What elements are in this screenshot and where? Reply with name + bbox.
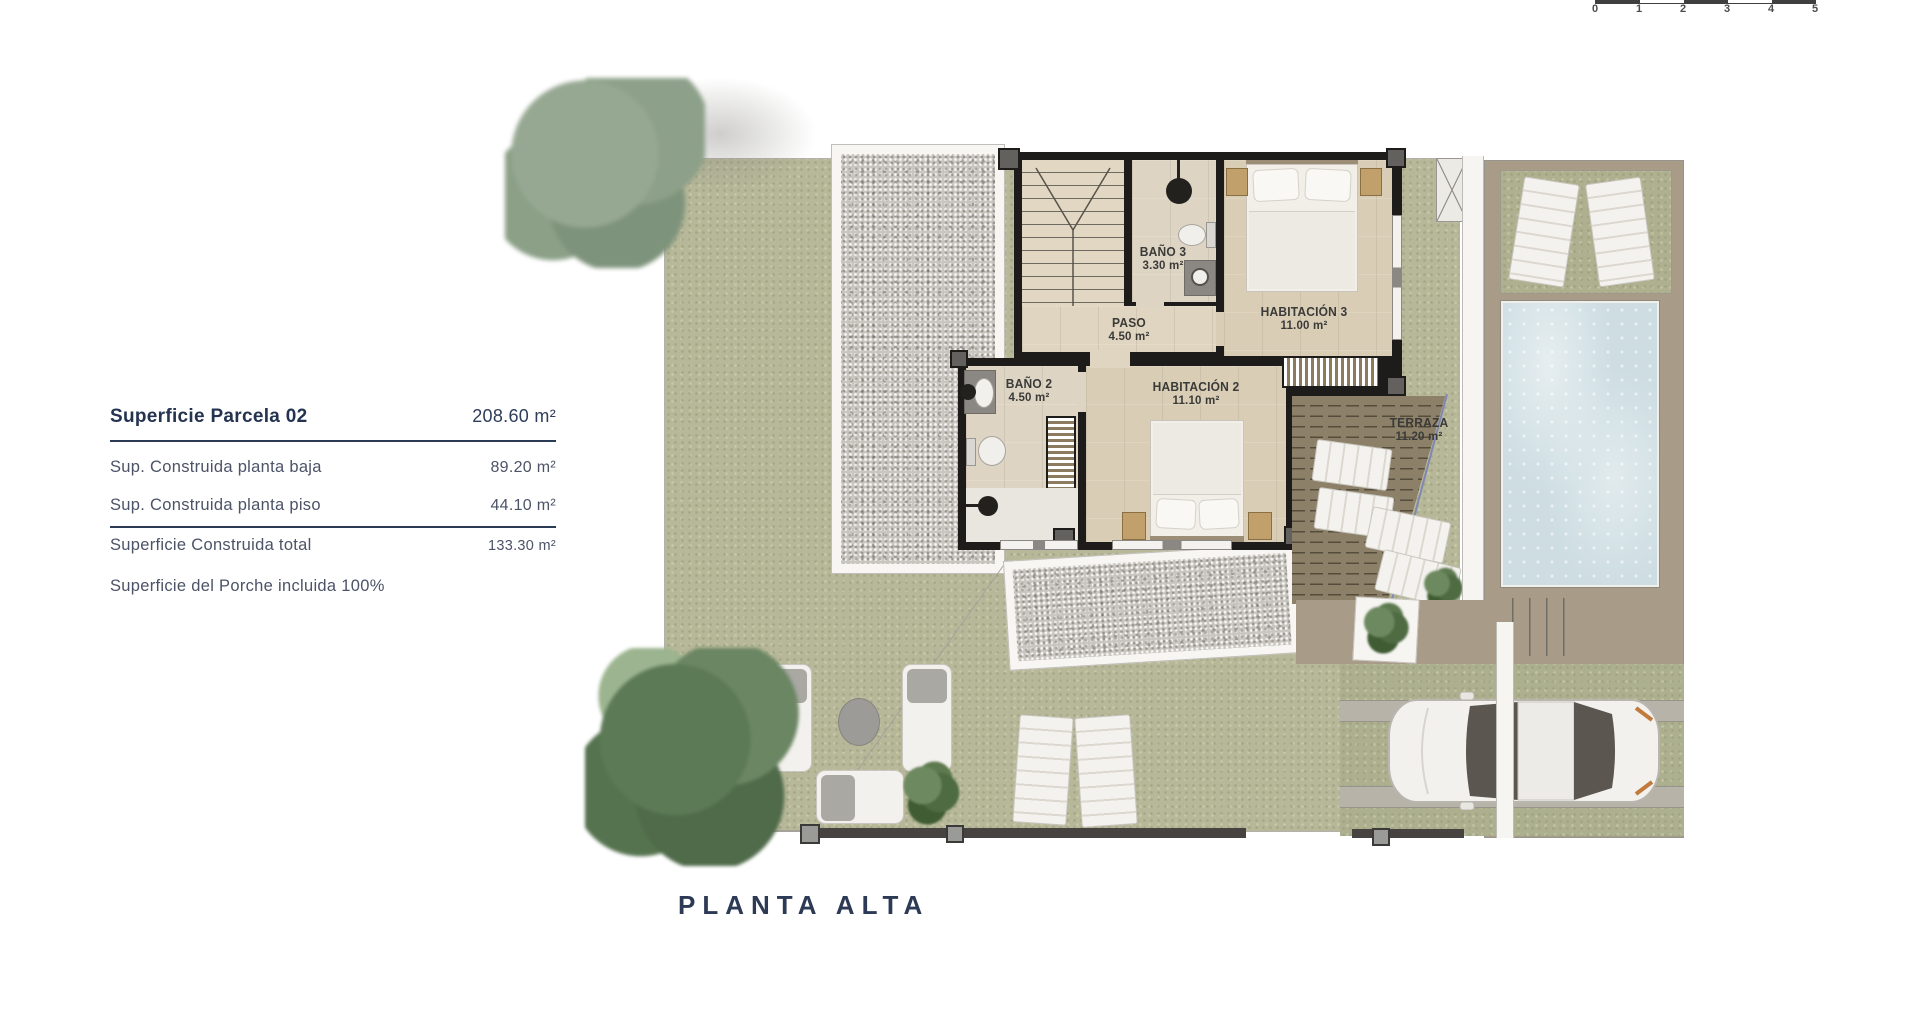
porche-note: Superficie del Porche incluida 100% [110,577,385,596]
nightstand [1122,512,1146,540]
room-area: 11.10 m² [1148,394,1244,407]
info-row-planta-piso: Sup. Construida planta piso 44.10 m² [110,496,556,515]
nightstand [1226,168,1248,196]
shower-pipe [966,504,980,507]
parcela-label: Superficie Parcela 02 [110,406,307,428]
window-bottom-wall [1000,540,1078,550]
scale-tick-1: 1 [1629,3,1649,15]
faucet-dot [960,384,976,400]
info-row-total: Superficie Construida total 133.30 m² [110,536,556,555]
scale-tick-4: 4 [1761,3,1781,15]
grass-tuft [896,758,966,830]
toilet-tank [1206,222,1216,248]
sofa-backrest [821,775,855,821]
wall-corner-block [1386,148,1406,168]
total-label: Superficie Construida total [110,536,312,555]
sun-lounger [1012,714,1073,826]
bed-habitacion2 [1150,420,1244,538]
bed-duvet [1249,211,1355,289]
scale-tick-5: 5 [1805,3,1825,15]
label-bano3: BAÑO 3 3.30 m² [1131,246,1194,272]
fence-post [1372,828,1390,846]
bed-pillow [1155,498,1197,530]
shower-drain [978,496,998,516]
info-row-planta-baja: Sup. Construida planta baja 89.20 m² [110,458,556,477]
label-terraza: TERRAZA 11.20 m² [1389,417,1449,443]
floor-plan-page: 0 1 2 3 4 5 Superficie Parcela 02 208.60… [0,0,1920,1024]
window-bottom-wall [1112,540,1232,550]
total-value: 133.30 m² [488,538,556,554]
door-opening [1216,312,1224,346]
bed-duvet [1153,423,1241,495]
room-area: 4.50 m² [1097,330,1160,343]
gravel-area-lower [1012,553,1291,662]
fence-post [800,824,820,844]
wall-corner-block [1386,376,1406,396]
door-opening [1078,372,1086,412]
swimming-pool [1503,303,1657,585]
divider-line [110,440,556,442]
garden-table [838,698,880,746]
gravel-frame-lower [1003,543,1301,671]
room-area: 11.00 m² [1258,319,1350,332]
parcela-value: 208.60 m² [472,406,556,427]
sink-bano3 [1166,178,1192,204]
tree [505,78,705,268]
exterior-steps [1512,598,1576,656]
toilet-bano3 [1178,224,1206,246]
wall-corner-block [998,148,1020,170]
window-right-wall [1392,215,1402,340]
bed-habitacion3 [1246,164,1358,292]
scale-tick-0: 0 [1585,3,1605,15]
label-paso: PASO 4.50 m² [1097,317,1160,343]
planta-piso-label: Sup. Construida planta piso [110,496,321,515]
bed-pillow [1198,498,1240,530]
nightstand [1248,512,1272,540]
plan-title: PLANTA ALTA [678,890,978,924]
wall-corner-block [950,350,968,368]
room-area: 4.50 m² [997,391,1060,404]
room-area: 3.30 m² [1131,259,1194,272]
sun-lounger [1074,714,1138,828]
planta-baja-label: Sup. Construida planta baja [110,458,322,477]
info-row-parcela: Superficie Parcela 02 208.60 m² [110,406,556,428]
side-walkway [1462,156,1484,624]
info-row-porche: Superficie del Porche incluida 100% [110,577,556,596]
label-habitacion3: HABITACIÓN 3 11.00 m² [1258,306,1350,332]
nightstand [1360,168,1382,196]
scale-tick-3: 3 [1717,3,1737,15]
label-bano2: BAÑO 2 4.50 m² [997,378,1060,404]
planta-piso-value: 44.10 m² [490,497,556,515]
bed-pillow [1304,168,1352,202]
room-area: 11.20 m² [1389,430,1449,443]
sofa-backrest [907,669,947,703]
car [1386,692,1662,810]
planta-baja-value: 89.20 m² [490,459,556,477]
parcel-divider-wall [1496,622,1514,838]
fence-bar [806,828,1246,838]
fence-bar [1352,829,1464,838]
sink-pipe [1177,160,1180,180]
tree [585,648,800,866]
bed-pillow [1252,168,1300,202]
door-opening [1090,350,1130,368]
toilet-tank [966,438,976,466]
sink-bano2 [974,378,994,408]
bush [1358,600,1414,658]
door-opening [1136,298,1164,308]
garden-sofa [902,664,952,772]
garden-loveseat [816,770,904,824]
divider-line [110,526,556,528]
label-habitacion2: HABITACIÓN 2 11.10 m² [1148,381,1244,407]
fence-post [946,825,964,843]
scale-bar-ticks: 0 1 2 3 4 5 [1585,3,1845,17]
surface-info-panel: Superficie Parcela 02 208.60 m² Sup. Con… [110,398,556,613]
toilet-bano2 [978,436,1006,466]
scale-tick-2: 2 [1673,3,1693,15]
wardrobe-habitacion3 [1282,356,1380,388]
